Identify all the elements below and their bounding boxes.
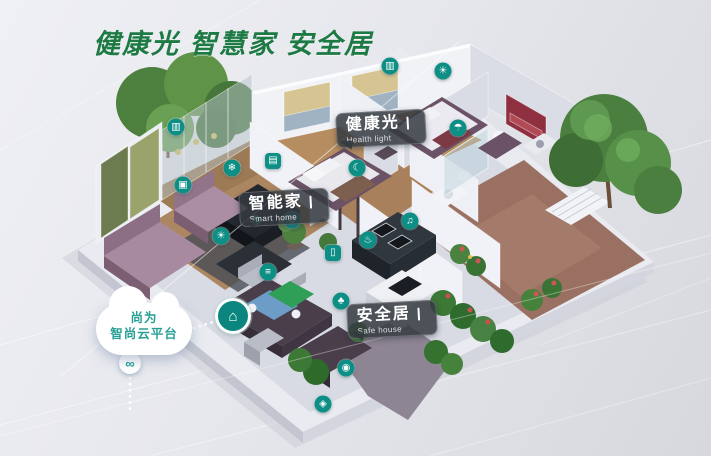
cloud-platform-badge[interactable]: 尚为 智尚云平台 [96,303,192,355]
cloud-link-icon-glyph: ∞ [125,357,134,370]
gas-sensor-icon-glyph: ♨ [364,235,373,245]
door-sensor-icon-glyph: ▯ [330,248,336,258]
lamp-icon-glyph: ☀ [217,231,226,241]
lamp-icon[interactable]: ☀ [213,228,230,245]
chip-smart-zh: 智能家 [248,193,303,214]
switch-panel-icon[interactable]: ▤ [265,153,281,169]
sleep-monitor-icon[interactable]: ☾ [349,160,366,177]
label-chip-smart-home[interactable]: 智能家 Smart home [238,188,330,228]
humidity-sensor-icon-glyph: ☂ [454,123,463,133]
tv-icon[interactable]: ▣ [175,177,192,194]
curtain-icon-glyph: ▥ [171,122,180,132]
ceiling-light-icon-glyph: ☀ [439,66,448,76]
plant-sensor-icon-glyph: ♣ [338,296,345,306]
air-quality-icon[interactable]: ≡ [260,264,277,281]
speaker-icon[interactable]: ♫ [402,213,419,230]
chip-cursor-bar [406,116,409,129]
label-chip-safe-house[interactable]: 安全居 Safe house [346,300,438,340]
curtain-blind-icon-glyph: ▥ [385,61,394,71]
gas-sensor-icon[interactable]: ♨ [360,232,377,249]
curtain-icon[interactable]: ▥ [168,119,185,136]
ceiling-light-icon[interactable]: ☀ [435,63,452,80]
gateway-hub-icon-glyph: ⌂ [228,309,237,324]
door-lock-icon-glyph: ◈ [319,399,327,409]
chip-health-zh: 健康光 [345,114,400,135]
humidity-sensor-icon[interactable]: ☂ [450,120,467,137]
chip-safe-zh: 安全居 [356,305,411,326]
speaker-icon-glyph: ♫ [406,216,414,226]
curtain-blind-icon[interactable]: ▥ [382,58,399,75]
ac-icon-glyph: ❄ [228,163,236,173]
label-chip-health-light[interactable]: 健康光 Health light [335,109,427,149]
cloud-platform-name: 智尚云平台 [96,326,192,342]
ac-icon[interactable]: ❄ [224,160,241,177]
door-sensor-icon[interactable]: ▯ [325,245,341,261]
door-lock-icon[interactable]: ◈ [315,396,332,413]
switch-panel-icon-glyph: ▤ [268,156,277,166]
air-quality-icon-glyph: ≡ [265,267,271,277]
cloud-link-icon[interactable]: ∞ [119,352,141,374]
tv-icon-glyph: ▣ [178,180,187,190]
camera-icon[interactable]: ◉ [338,360,355,377]
cloud-brand: 尚为 [96,310,192,326]
chip-cursor-bar [309,195,312,208]
chip-cursor-bar [417,307,420,320]
floorplan-illustration [0,0,711,456]
gateway-hub-icon[interactable]: ⌂ [218,301,248,331]
camera-icon-glyph: ◉ [342,363,351,373]
page-title: 健康光 智慧家 安全居 [93,22,373,61]
sleep-monitor-icon-glyph: ☾ [353,163,362,173]
